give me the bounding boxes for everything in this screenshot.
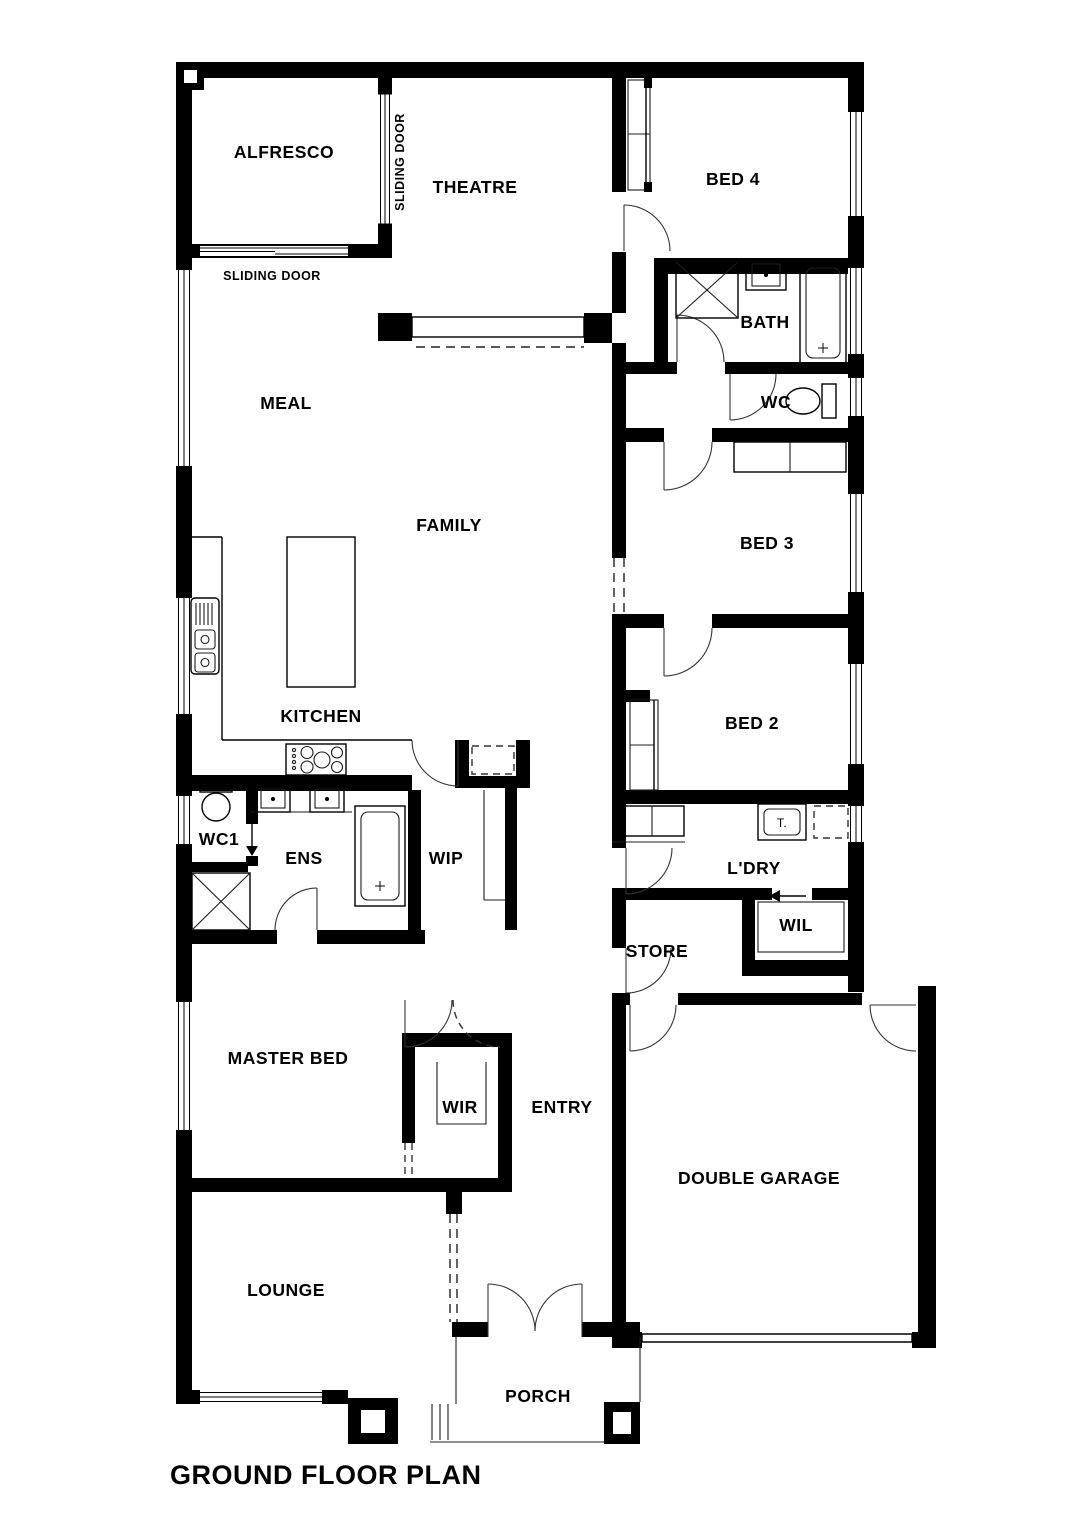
room-label-alfresco: ALFRESCO bbox=[234, 142, 334, 162]
door-bed3 bbox=[664, 442, 712, 490]
door-front-double bbox=[488, 1284, 582, 1337]
pillar-porch bbox=[604, 1402, 640, 1444]
door-bath bbox=[677, 315, 724, 362]
garage-door bbox=[642, 1334, 912, 1342]
window-wc bbox=[848, 378, 864, 416]
room-label-family: FAMILY bbox=[416, 515, 482, 535]
vanity-bath-icon bbox=[746, 260, 786, 290]
washer-space bbox=[814, 806, 848, 838]
room-label-theatre: THEATRE bbox=[433, 177, 518, 197]
room-label-double-garage: DOUBLE GARAGE bbox=[678, 1168, 840, 1188]
window-bed2 bbox=[848, 664, 864, 764]
internal-walls bbox=[176, 62, 862, 1348]
room-label-master-bed: MASTER BED bbox=[228, 1048, 349, 1068]
door-garage-internal bbox=[630, 1005, 676, 1051]
window-master bbox=[176, 1002, 192, 1130]
door-laundry bbox=[626, 848, 672, 894]
window-bed3 bbox=[848, 494, 864, 592]
room-label-meal: MEAL bbox=[260, 393, 312, 413]
room-label-bath: BATH bbox=[740, 312, 789, 332]
room-label-lounge: LOUNGE bbox=[247, 1280, 325, 1300]
pillar-alfresco bbox=[176, 62, 204, 90]
label-sliding-door-theatre: SLIDING DOOR bbox=[393, 113, 407, 211]
door-wip bbox=[412, 740, 458, 786]
room-label-bed2: BED 2 bbox=[725, 713, 779, 733]
room-label-kitchen: KITCHEN bbox=[280, 706, 361, 726]
toilet-wc-icon bbox=[786, 384, 836, 418]
page-title: GROUND FLOOR PLAN bbox=[170, 1460, 482, 1490]
room-label-porch: PORCH bbox=[505, 1386, 571, 1406]
room-label-ldry: L'DRY bbox=[727, 858, 781, 878]
robe-bed2 bbox=[630, 700, 658, 790]
sliding-door-theatre-glazing bbox=[378, 94, 392, 224]
window-bath bbox=[848, 268, 864, 354]
label-trough: T. bbox=[777, 816, 787, 830]
door-bed2 bbox=[664, 628, 712, 676]
room-label-wir: WIR bbox=[442, 1097, 478, 1117]
door-garage-rear bbox=[870, 1005, 916, 1051]
bathtub-ens-icon bbox=[355, 806, 405, 906]
room-label-wc: WC bbox=[761, 392, 791, 412]
room-label-bed3: BED 3 bbox=[740, 533, 794, 553]
room-label-wc1: WC1 bbox=[199, 829, 239, 849]
room-label-ens: ENS bbox=[285, 848, 322, 868]
sink-icon bbox=[191, 598, 219, 674]
window-meal bbox=[176, 270, 192, 466]
door-bed4 bbox=[624, 205, 670, 251]
wil-entry-arrow bbox=[769, 890, 806, 902]
wip-shelf bbox=[484, 790, 505, 900]
bathtub-bath-icon bbox=[800, 262, 846, 364]
window-lounge bbox=[200, 1390, 322, 1404]
room-label-store: STORE bbox=[626, 941, 688, 961]
shower-ens-icon bbox=[192, 873, 250, 930]
robe-bed3 bbox=[734, 442, 846, 472]
pillar-lounge bbox=[348, 1398, 398, 1444]
island-bench bbox=[287, 537, 355, 687]
floor-plan: ALFRESCO SLIDING DOOR THEATRE BED 4 SLID… bbox=[0, 0, 1087, 1536]
room-label-bed4: BED 4 bbox=[706, 169, 760, 189]
floor-plan-svg: ALFRESCO SLIDING DOOR THEATRE BED 4 SLID… bbox=[0, 0, 1087, 1536]
window-bed4 bbox=[848, 112, 864, 216]
robe-bed4 bbox=[628, 78, 652, 192]
wc1-entry-arrow bbox=[246, 824, 258, 856]
room-label-wil: WIL bbox=[779, 915, 813, 935]
label-sliding-door-alfresco: SLIDING DOOR bbox=[223, 269, 321, 283]
laundry-cabinet bbox=[620, 806, 684, 836]
window-ldry bbox=[848, 806, 864, 842]
door-ens bbox=[275, 888, 317, 930]
room-label-wip: WIP bbox=[429, 848, 464, 868]
window-wc1 bbox=[176, 796, 192, 844]
cooktop-icon bbox=[286, 744, 346, 775]
window-kitchen bbox=[176, 598, 192, 714]
fridge-niche bbox=[455, 740, 530, 788]
room-label-entry: ENTRY bbox=[531, 1097, 592, 1117]
sliding-door-alfresco-glazing bbox=[200, 246, 348, 256]
